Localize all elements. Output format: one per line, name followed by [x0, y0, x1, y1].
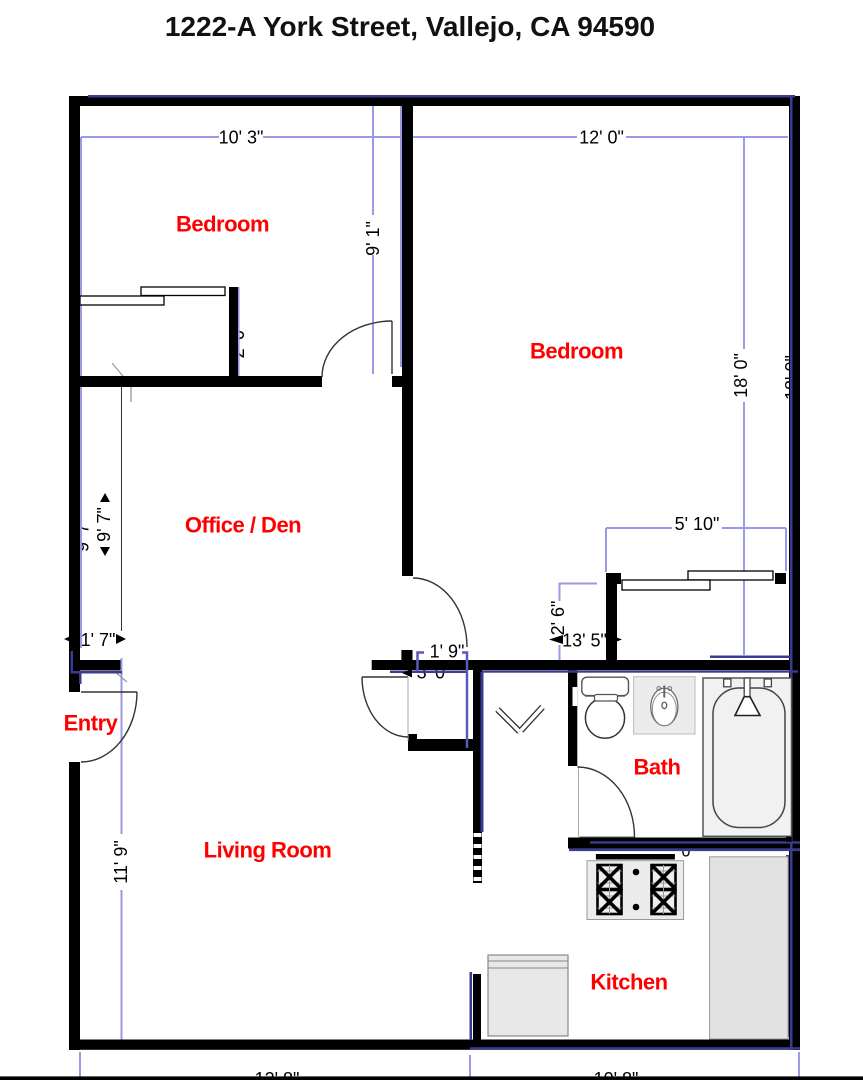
svg-text:Bedroom: Bedroom: [530, 339, 623, 364]
svg-text:13' 5": 13' 5": [562, 631, 607, 651]
svg-text:Living Room: Living Room: [204, 838, 332, 863]
svg-text:9' 7": 9' 7": [94, 507, 114, 542]
svg-text:Bath: Bath: [634, 755, 681, 780]
svg-text:1222-A York Street, Vallejo, C: 1222-A York Street, Vallejo, CA 94590: [165, 11, 655, 42]
svg-text:Entry: Entry: [64, 711, 119, 736]
svg-text:Bedroom: Bedroom: [176, 212, 269, 237]
svg-text:18' 0": 18' 0": [731, 353, 751, 398]
svg-text:9' 1": 9' 1": [363, 221, 383, 256]
svg-text:11' 9": 11' 9": [111, 840, 131, 884]
svg-text:Kitchen: Kitchen: [590, 970, 667, 995]
svg-text:5' 10": 5' 10": [675, 514, 720, 534]
svg-text:1' 9": 1' 9": [430, 642, 465, 662]
svg-text:12' 0": 12' 0": [579, 128, 624, 148]
svg-text:10' 3": 10' 3": [219, 128, 264, 148]
svg-text:1' 7": 1' 7": [81, 630, 116, 650]
svg-text:Office / Den: Office / Den: [185, 513, 301, 538]
